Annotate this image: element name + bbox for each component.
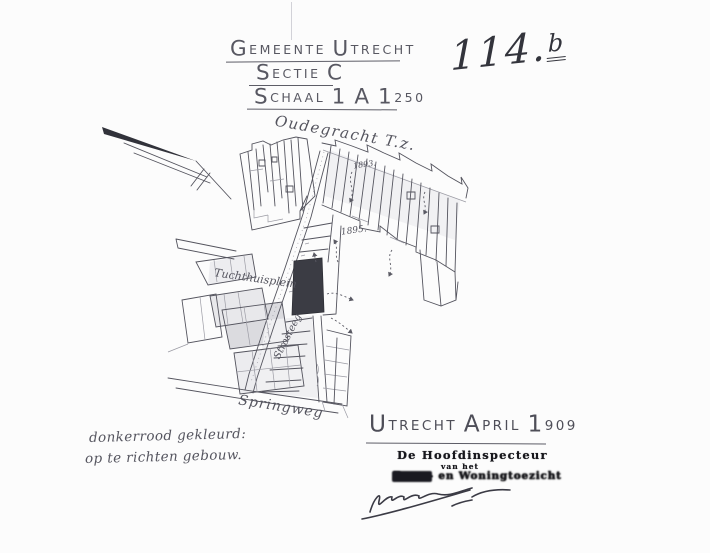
signature [362, 488, 510, 519]
parcel-block-northwest [240, 137, 315, 230]
ink-blob [392, 471, 432, 482]
place-date: Utrecht April 1909 [369, 418, 578, 434]
map-linework [0, 0, 710, 553]
scanned-map-page: Gemeente Utrecht Sectie C Schaal 1 A 125… [0, 0, 710, 553]
stamp-title: De Hoofdinspecteur [397, 448, 548, 462]
new-building-footprint [292, 258, 324, 315]
north-arrow [102, 127, 231, 199]
